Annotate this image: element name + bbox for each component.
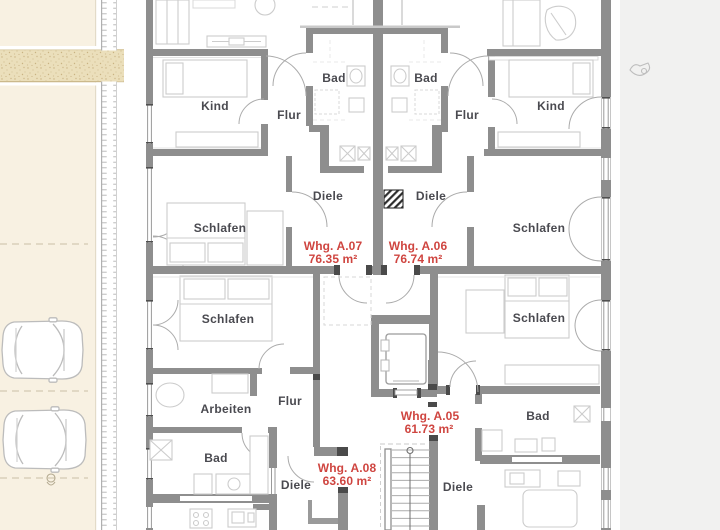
- svg-text:Kind: Kind: [201, 99, 229, 113]
- svg-text:Schlafen: Schlafen: [513, 221, 565, 235]
- svg-text:Schlafen: Schlafen: [194, 221, 246, 235]
- svg-text:Diele: Diele: [281, 478, 311, 492]
- svg-text:Schlafen: Schlafen: [202, 312, 254, 326]
- svg-text:Diele: Diele: [416, 189, 446, 203]
- svg-text:Flur: Flur: [455, 108, 479, 122]
- svg-text:Schlafen: Schlafen: [513, 311, 565, 325]
- svg-text:Bad: Bad: [414, 71, 438, 85]
- svg-text:76.35 m²: 76.35 m²: [309, 252, 358, 266]
- svg-text:76.74 m²: 76.74 m²: [394, 252, 443, 266]
- svg-text:Whg. A.07: Whg. A.07: [304, 239, 363, 253]
- svg-text:Bad: Bad: [526, 409, 550, 423]
- svg-text:Bad: Bad: [322, 71, 346, 85]
- svg-text:Flur: Flur: [277, 108, 301, 122]
- svg-text:Whg. A.08: Whg. A.08: [318, 461, 377, 475]
- svg-text:63.60 m²: 63.60 m²: [323, 474, 372, 488]
- svg-text:61.73 m²: 61.73 m²: [405, 422, 454, 436]
- svg-text:Arbeiten: Arbeiten: [200, 402, 251, 416]
- svg-text:Whg. A.05: Whg. A.05: [401, 409, 460, 423]
- svg-text:Diele: Diele: [443, 480, 473, 494]
- svg-text:Diele: Diele: [313, 189, 343, 203]
- svg-text:Bad: Bad: [204, 451, 228, 465]
- svg-text:Flur: Flur: [278, 394, 302, 408]
- svg-text:Whg. A.06: Whg. A.06: [389, 239, 448, 253]
- svg-text:Kind: Kind: [537, 99, 565, 113]
